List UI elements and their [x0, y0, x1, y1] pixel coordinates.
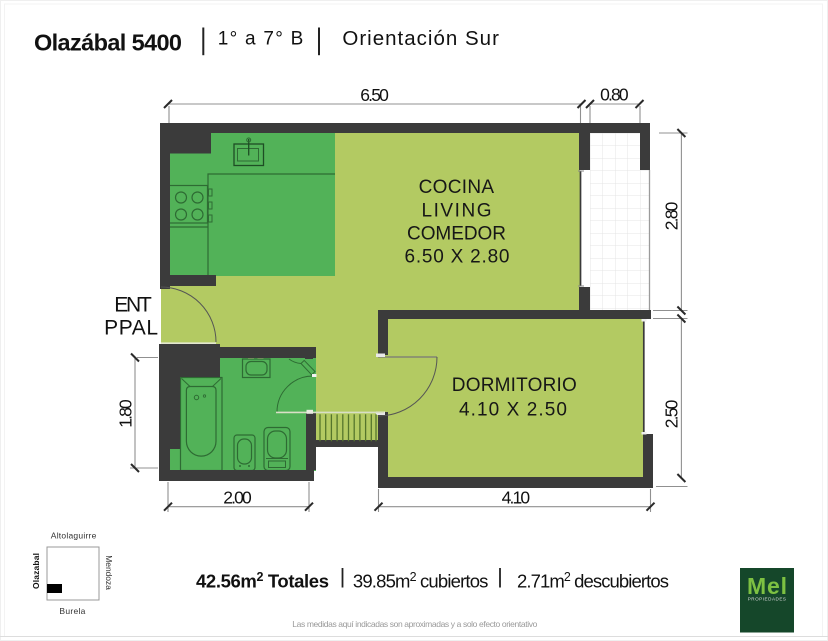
- svg-text:COMEDOR: COMEDOR: [407, 224, 506, 245]
- svg-text:Mendoza: Mendoza: [104, 555, 114, 590]
- svg-text:4.10 X 2.50: 4.10 X 2.50: [459, 399, 567, 420]
- svg-text:1° a 7° B: 1° a 7° B: [218, 28, 303, 49]
- svg-text:Mel: Mel: [747, 573, 787, 599]
- svg-text:4.10: 4.10: [502, 487, 531, 507]
- svg-text:1.80: 1.80: [116, 399, 136, 428]
- svg-text:2.71m2 descubiertos: 2.71m2 descubiertos: [517, 570, 669, 592]
- svg-text:COCINA: COCINA: [419, 177, 495, 198]
- svg-text:PPAL: PPAL: [104, 317, 158, 340]
- svg-text:ENT: ENT: [114, 294, 152, 317]
- svg-text:DORMITORIO: DORMITORIO: [452, 375, 577, 396]
- svg-text:Olazábal 5400: Olazábal 5400: [34, 30, 182, 56]
- svg-text:Las medidas aquí indicadas son: Las medidas aquí indicadas son aproximad…: [292, 619, 537, 629]
- svg-text:Orientación Sur: Orientación Sur: [342, 27, 499, 50]
- svg-text:2.80: 2.80: [662, 201, 682, 230]
- svg-text:Burela: Burela: [59, 606, 85, 616]
- svg-text:6.50: 6.50: [360, 85, 389, 105]
- svg-text:2.00: 2.00: [223, 487, 252, 507]
- svg-text:42.56m2 Totales: 42.56m2 Totales: [196, 570, 329, 592]
- svg-text:LIVING: LIVING: [422, 200, 492, 221]
- svg-text:Olazabal: Olazabal: [31, 553, 41, 589]
- svg-text:39.85m2 cubiertos: 39.85m2 cubiertos: [353, 570, 489, 592]
- svg-text:2.50: 2.50: [662, 399, 682, 428]
- svg-text:0.80: 0.80: [600, 85, 629, 105]
- svg-text:6.50 X 2.80: 6.50 X 2.80: [405, 247, 510, 268]
- svg-text:Altolaguirre: Altolaguirre: [51, 531, 97, 541]
- svg-text:PROPIEDADES: PROPIEDADES: [748, 596, 786, 601]
